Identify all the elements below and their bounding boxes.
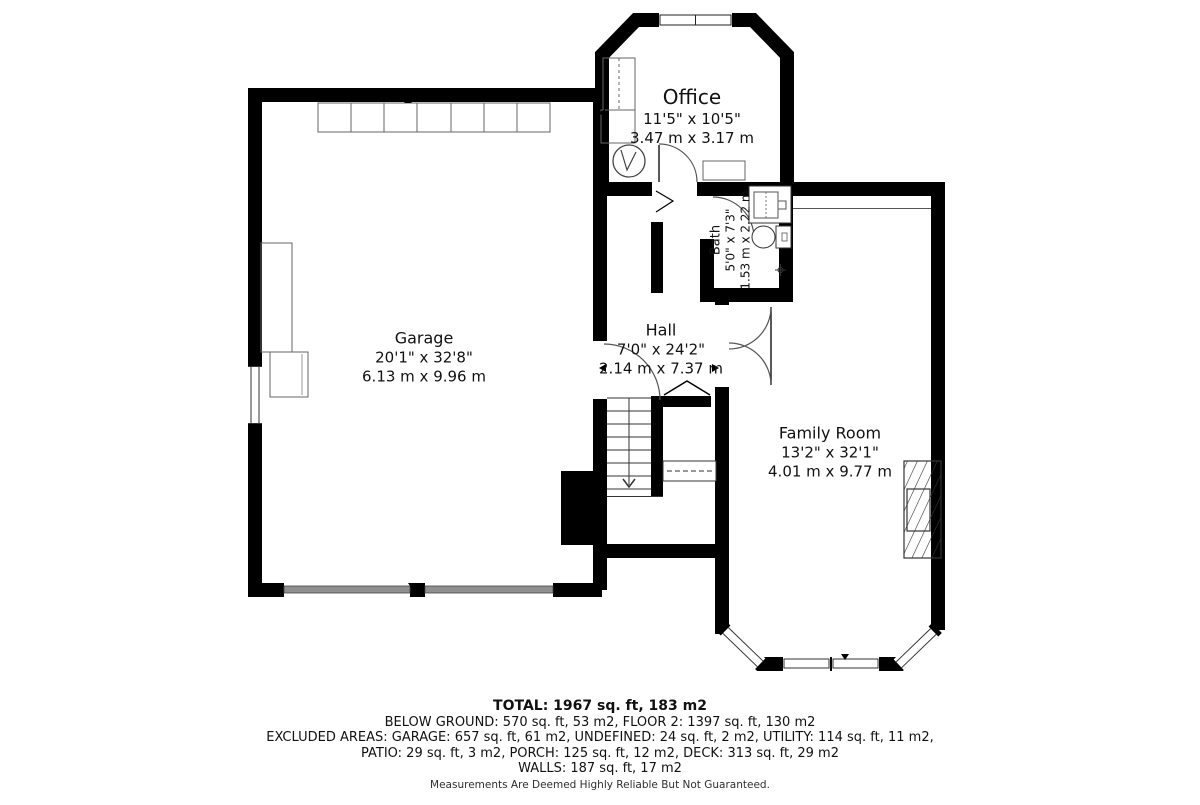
fireplace-icon <box>904 461 941 558</box>
office-top-window <box>659 12 732 28</box>
opening-chevron-icon <box>664 381 710 395</box>
family-room-double-door <box>715 305 771 387</box>
garage-dims-m: 6.13 m x 9.96 m <box>362 368 486 387</box>
workbench <box>261 243 292 352</box>
office-dims-m: 3.47 m x 3.17 m <box>630 129 754 148</box>
disclaimer-text: Measurements Are Deemed Highly Reliable … <box>0 779 1200 791</box>
sink-vanity-icon <box>749 186 791 223</box>
garage-dims-ft: 20'1" x 32'8" <box>362 349 486 368</box>
bath-room-name: Bath <box>709 190 724 289</box>
ceiling-fixture-icon <box>613 145 645 177</box>
hall-dims-m: 2.14 m x 7.37 m <box>599 360 723 379</box>
area-summary: TOTAL: 1967 sq. ft, 183 m2 BELOW GROUND:… <box>0 698 1200 777</box>
summary-excluded-areas-2: PATIO: 29 sq. ft, 3 m2, PORCH: 125 sq. f… <box>0 746 1200 761</box>
toilet-icon <box>752 226 791 248</box>
summary-excluded-areas: EXCLUDED AREAS: GARAGE: 657 sq. ft, 61 m… <box>0 730 1200 745</box>
office-dims-ft: 11'5" x 10'5" <box>630 110 754 129</box>
garage-left-window <box>248 366 262 424</box>
low-cabinet <box>703 161 745 180</box>
hall-dims-ft: 7'0" x 24'2" <box>599 341 723 360</box>
office-room-name: Office <box>630 84 754 110</box>
bay-windows <box>720 625 938 671</box>
floorplan-page: Office 11'5" x 10'5" 3.47 m x 3.17 m Bat… <box>0 0 1200 805</box>
utility-wall-stub <box>651 222 663 293</box>
garage-room-name: Garage <box>362 328 486 349</box>
family-room-fixtures <box>793 209 941 559</box>
bath-dims-ft: 5'0" x 7'3" <box>724 190 739 289</box>
hall-room-name: Hall <box>599 320 723 341</box>
bath-dims-m: 1.53 m x 2.22 m <box>739 190 754 289</box>
family-room-dims-m: 4.01 m x 9.77 m <box>768 463 892 482</box>
stair-railing-dashed <box>663 461 716 481</box>
garage-label: Garage 20'1" x 32'8" 6.13 m x 9.96 m <box>362 328 486 387</box>
family-room-label: Family Room 13'2" x 32'1" 4.01 m x 9.77 … <box>768 423 892 482</box>
summary-walls: WALLS: 187 sq. ft, 17 m2 <box>0 761 1200 776</box>
summary-below-ground: BELOW GROUND: 570 sq. ft, 53 m2, FLOOR 2… <box>0 715 1200 730</box>
floorplan-drawing <box>0 0 1200 805</box>
stairwell-wall <box>651 396 663 497</box>
hall-label: Hall 7'0" x 24'2" 2.14 m x 7.37 m <box>599 320 723 379</box>
family-room-name: Family Room <box>768 423 892 444</box>
office-door <box>652 144 697 196</box>
chimney-mass <box>561 471 607 545</box>
bath-label: Bath 5'0" x 7'3" 1.53 m x 2.22 m <box>709 190 754 289</box>
garage-cabinets <box>318 103 550 132</box>
office-label: Office 11'5" x 10'5" 3.47 m x 3.17 m <box>630 84 754 148</box>
family-room-dims-ft: 13'2" x 32'1" <box>768 444 892 463</box>
summary-total: TOTAL: 1967 sq. ft, 183 m2 <box>0 698 1200 715</box>
